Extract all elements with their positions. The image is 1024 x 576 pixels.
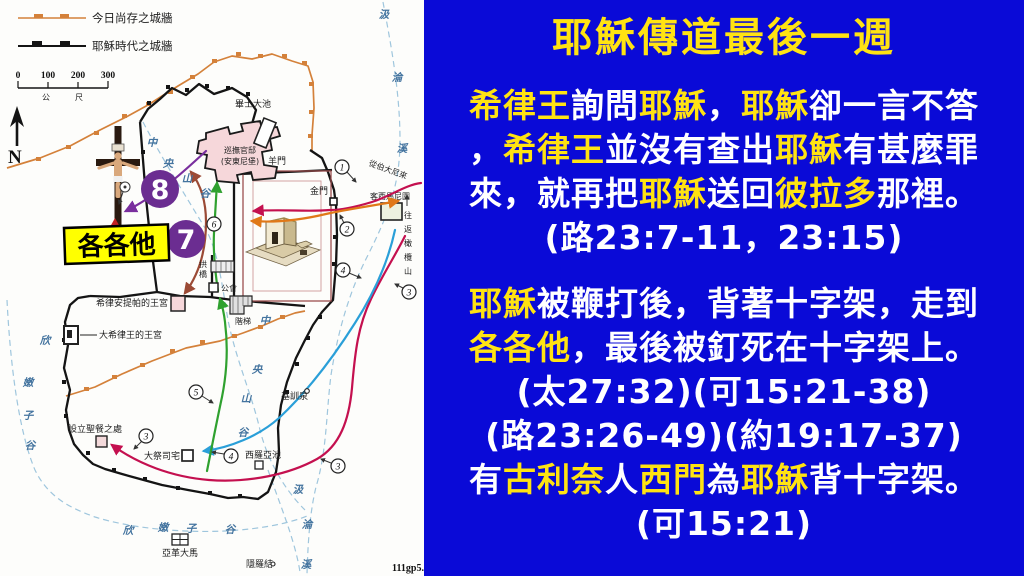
route-number-5: 5	[194, 389, 199, 399]
scripture-reference: (路23:26-49)(約19:17-37)	[424, 414, 1024, 458]
bethesda-label: 畢士大池	[235, 98, 271, 110]
siloam-label: 西羅亞池	[245, 449, 281, 461]
olives-char: 返	[404, 225, 412, 234]
scale-tick-200: 200	[71, 71, 86, 81]
route-number-4: 4	[341, 267, 346, 277]
text-line: ，希律王並沒有查出耶穌有甚麼罪	[424, 128, 1024, 172]
scale-unit-right: 尺	[75, 93, 83, 102]
high-priest-house	[182, 450, 193, 461]
text-panel: 耶穌傳道最後一週 希律王詢問耶穌，耶穌卻一言不答 ，希律王並沒有查出耶穌有甚麼罪…	[424, 0, 1024, 576]
enrogel-spring	[271, 562, 275, 566]
central-valley-char: 谷	[238, 427, 250, 439]
olives-char: 橄	[404, 238, 412, 248]
central-valley-char: 中	[260, 314, 272, 327]
central-valley-char: 山	[241, 393, 253, 405]
last-supper-site	[96, 436, 107, 447]
bridge-label-char2: 橋	[199, 269, 207, 279]
text-line: 來，就再把耶穌送回彼拉多那裡。	[424, 172, 1024, 216]
central-valley-char: 谷	[200, 188, 212, 200]
hinnom-char: 子	[186, 523, 198, 535]
praetorium-label-line1: 巡撫官邸	[224, 145, 256, 155]
map-svg: 巡撫官邸 (安東尼堡) 畢士大池 羊門 金門 客西馬尼園	[0, 0, 424, 576]
last-supper-label: 設立聖餐之處	[68, 423, 122, 435]
text-line: 希律王詢問耶穌，耶穌卻一言不答	[424, 84, 1024, 128]
legend-modern-wall: 今日尚存之城牆	[92, 11, 173, 25]
herod-antipas-palace	[171, 296, 185, 311]
route-number-3b: 3	[143, 433, 149, 443]
scale-tick-300: 300	[101, 71, 116, 81]
central-valley-char: 央	[163, 157, 175, 170]
herod-great-label: 大希律王的王宮	[99, 329, 162, 341]
gihon-label: 基訓泉	[281, 390, 308, 402]
gihon-spring	[305, 389, 310, 394]
olives-char: 往	[404, 210, 412, 220]
text-line: 有古利奈人西門為耶穌背十字架。	[424, 458, 1024, 502]
paragraph-2: 耶穌被鞭打後，背著十字架，走到 各各他，最後被釘死在十字架上。 (太27:32)…	[424, 282, 1024, 546]
central-valley-char: 中	[147, 136, 159, 149]
kidron-char: 溪	[301, 558, 313, 571]
hinnom-char: 谷	[25, 440, 37, 452]
paragraph-1: 希律王詢問耶穌，耶穌卻一言不答 ，希律王並沒有查出耶穌有甚麼罪 來，就再把耶穌送…	[424, 84, 1024, 260]
kidron-char: 汲	[379, 9, 391, 21]
scale-tick-0: 0	[16, 71, 21, 81]
route-number-6: 6	[212, 221, 217, 231]
golgotha-label: 各各他	[76, 229, 156, 263]
enrogel-label: 隱羅結	[246, 558, 273, 570]
route-number-1: 1	[340, 164, 345, 174]
akeldama-symbol	[172, 534, 188, 545]
route-number-3c: 3	[335, 463, 341, 473]
scripture-reference: (太27:32)(可15:21-38)	[424, 370, 1024, 414]
scale-unit-left: 公	[42, 93, 50, 102]
bridge-symbol	[211, 261, 234, 272]
slide: 巡撫官邸 (安東尼堡) 畢士大池 羊門 金門 客西馬尼園	[0, 0, 1024, 576]
scale-tick-100: 100	[41, 71, 56, 81]
jerusalem-map: 巡撫官邸 (安東尼堡) 畢士大池 羊門 金門 客西馬尼園	[0, 0, 424, 576]
bridge-label-char1: 拱	[199, 259, 207, 269]
hinnom-char: 谷	[225, 524, 237, 536]
kidron-char: 汲	[293, 484, 305, 496]
kidron-char: 溪	[397, 142, 409, 155]
legend-jesus-wall: 耶穌時代之城牆	[92, 39, 173, 53]
akeldama-label: 亞革大馬	[162, 547, 198, 559]
stage-7-number: 7	[177, 225, 196, 256]
high-priest-label: 大祭司宅	[144, 450, 180, 462]
route-number-3: 3	[406, 289, 412, 299]
central-valley-char: 央	[252, 363, 264, 376]
stage-8-number: 8	[151, 175, 170, 206]
golden-gate-label: 金門	[310, 185, 328, 197]
sheep-gate-label: 羊門	[268, 155, 286, 167]
olives-char: 山	[404, 266, 412, 276]
text-line: 耶穌被鞭打後，背著十字架，走到	[424, 282, 1024, 326]
route-number-2: 2	[345, 226, 350, 236]
map-credit: 111gp5.	[392, 563, 424, 574]
text-line: 各各他，最後被釘死在十字架上。	[424, 326, 1024, 370]
olives-char: 欖	[404, 252, 412, 262]
scripture-reference: (路23:7-11，23:15)	[424, 216, 1024, 260]
herod-antipas-label: 希律安提帕的王宮	[96, 297, 168, 309]
sanhedrin-hall	[209, 283, 218, 292]
siloam-pool	[255, 461, 263, 469]
hinnom-char: 子	[23, 410, 35, 422]
sanhedrin-label: 公會	[221, 283, 237, 293]
north-label: N	[8, 147, 22, 168]
praetorium-label-line2: (安東尼堡)	[221, 156, 259, 166]
scripture-reference: (可15:21)	[424, 502, 1024, 546]
stairs-label: 階梯	[235, 316, 251, 326]
central-valley-char: 山	[182, 173, 194, 185]
slide-title: 耶穌傳道最後一週	[424, 14, 1024, 62]
route-number-4b: 4	[229, 453, 234, 463]
golgotha-callout: 各各他	[64, 224, 169, 264]
